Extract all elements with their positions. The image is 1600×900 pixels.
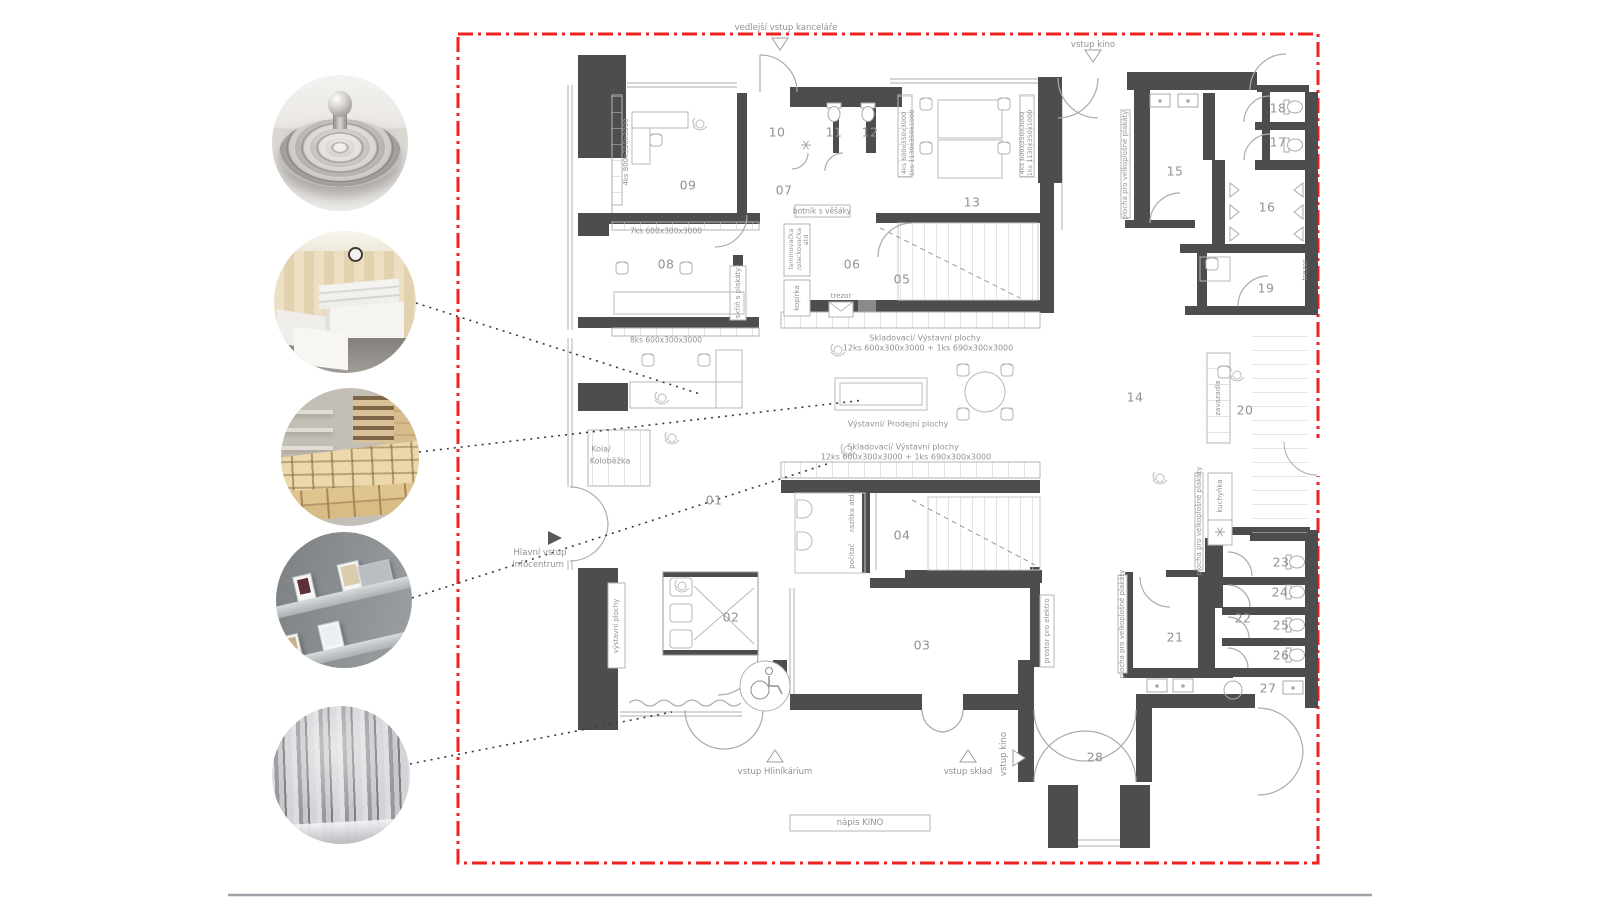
red-boundary (458, 34, 1318, 863)
stairs (880, 223, 1307, 570)
plan-drawing (0, 0, 1600, 900)
border-door-gap (1308, 438, 1324, 476)
entrance-markers (548, 38, 1101, 766)
napis-kino-box (790, 815, 930, 831)
wheelchair-symbol (740, 661, 790, 711)
floor-plan-page: 0102030405060708091011121314151617181920… (0, 0, 1600, 900)
walls (578, 55, 1318, 848)
main-entrance-arrow (548, 531, 562, 545)
